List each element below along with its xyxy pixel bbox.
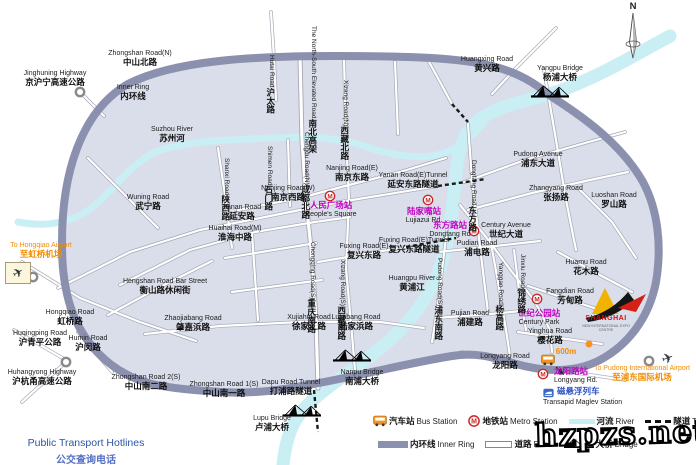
road-icon [485,441,512,448]
lbl-yinghua-road: Yinghua Road樱花路 [528,328,572,345]
lbl-huhangyong-highway: Huhangyong Highway沪杭甬高速公路 [8,369,77,386]
lbl-zhongshan-road-n: Zhongshan Road(N)中山北路 [108,50,171,67]
public-transport-hotlines: Public Transport Hotlines 公交查询电话 [6,437,166,465]
lbl-pujian-road: Pujian Road浦建路 [451,310,489,327]
lbl-dapu-road-tunnel: Dapu Road Tunnel打浦路隧道 [262,379,320,396]
ring-icon [378,441,408,448]
lbl-expo-sub: NEW INTERNATIONAL EXPO CENTRE [582,324,630,332]
lbl-jinghuning-highway: Jinghuning Highway京沪宁高速公路 [24,70,87,87]
lbl-century-avenue: Century Avenue世纪大道 [481,222,531,239]
lbl-zhongshan-road-1s: Zhongshan Road 1(S)中山南一路 [190,381,259,398]
lbl-expo-name: SHANGHAI [585,315,626,323]
lbl-huangpu-river: Huangpu River黄浦江 [389,275,436,292]
lbl-600m: 600m [556,348,576,357]
lbl-huangxing-road: Huangxing Road黄兴路 [461,56,513,73]
lbl-nanjing-road-w: Nanjing Road(W)南京西路 [261,185,315,202]
lbl-huamu-road: Huamu Road花木路 [565,259,606,276]
lbl-longyang-road: Longyang Road龙阳路 [480,353,529,370]
hotlines-title-en: Public Transport Hotlines [6,437,166,449]
lbl-luoshan-road: Luoshan Road罗山路 [591,192,637,209]
lbl-zhaojiabang-road: Zhaojiabang Road肇嘉浜路 [164,315,221,332]
lbl-zhangyang-road: Zhangyang Road张扬路 [529,185,583,202]
lbl-hutai-road: Hutai Road沪太路 [262,55,279,113]
lbl-xizang-road-n: Xizang Road(N)西藏北路 [336,80,353,160]
hotlines-title-zh: 公交查询电话 [6,451,166,465]
lbl-fuxing-road-e-tunnel: Fuxing Road(E)Tunnel复兴东路隧道 [379,237,449,254]
lbl-jinxiu-road: Jinxiu Road锦绣路 [513,254,530,313]
lbl-huqingping-road: Huqingping Road沪青平公路 [13,330,67,347]
lbl-nanpu-bridge: Nanpu Bridge南浦大桥 [341,369,384,386]
lbl-nanjing-road-e: Nanjing Road(E)南京东路 [326,165,378,182]
lbl-suzhou-river: Suzhou River苏州河 [151,126,193,143]
lbl-lujiabang-road: Lujiabang Road陆家浜路 [331,314,380,331]
lbl-inner-ring: Inner Ring内环线 [117,84,149,101]
lbl-humin-road: Humin Road沪闵路 [69,335,108,352]
lbl-lupu-bridge: Lupu Bridge卢浦大桥 [253,415,291,432]
watermark: hzpzs.net [535,414,696,455]
lbl-compass-n: N [630,2,637,13]
hongqiao-airplane-icon: ✈ [5,262,31,284]
lbl-pudong-avenue: Pudong Avenue浦东大道 [513,151,562,168]
lbl-fangdian-road: Fangdian Road芳甸路 [546,288,594,305]
bus-icon [373,415,387,427]
lbl-yanggao-road: Yanggao Road杨高路 [491,262,508,330]
lbl-yanan-road-e-tunnel: Yanan Road(E)Tunnel延安东路隧道 [379,172,448,189]
lbl-dongfang-rd-station: 东方路站Dongfang Rd [429,221,470,238]
metro-icon [468,415,480,427]
lbl-maglev-zh: 磁悬浮列车 [557,387,600,397]
lbl-pudian-road: Pudian Road浦电路 [457,240,497,257]
lbl-wuning-road: Wuning Road武宁路 [127,194,169,211]
lbl-yangpu-bridge: Yangpu Bridge杨浦大桥 [537,65,583,82]
lbl-peoples-square: 人民广场站People's Square [305,201,356,218]
lbl-yanan-road: Yanan Road延安路 [223,204,261,221]
pudong-airplane-icon: ✈ [657,349,679,369]
map-labels: Jinghuning Highway京沪宁高速公路Zhongshan Road(… [0,0,696,465]
lbl-pudong-road-s: Pudong Road(S)浦东南路 [430,258,447,340]
shanghai-transport-map: M [0,0,696,465]
lbl-to-hongqiao-airport: To Hongqiao Airport至虹桥机场 [10,242,71,259]
lbl-xujiahui-road: Xujiahui Road徐家汇路 [287,314,331,331]
lbl-maglev-en: Transapid Maglev Station [543,399,622,407]
legend-item-bus: 汽车站Bus Station [373,415,457,427]
lbl-hengshan-road-bar-street: Hengshan Road Bar Street衡山路休闲街 [123,278,207,295]
lbl-hongqiao-road: Hongqiao Road虹桥路 [46,309,95,326]
lbl-huaihai-road-m: Huaihai Road(M)淮海中路 [209,225,262,242]
lbl-longyang-rd-station: 龙阳路站Longyang Rd. [554,367,598,384]
lbl-zhongshan-road-2s: Zhongshan Road 2(S)中山南二路 [112,374,181,391]
legend-item-ring: 内环线Inner Ring [378,438,474,450]
